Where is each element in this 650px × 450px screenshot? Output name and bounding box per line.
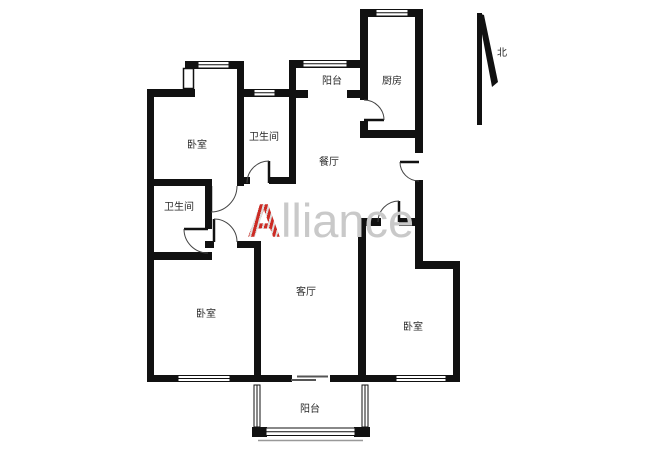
room-label-dining-room: 餐厅 xyxy=(319,155,339,168)
sliding-door xyxy=(291,377,328,381)
compass-north-label: 北 xyxy=(497,47,507,59)
watermark-first-letter: A xyxy=(247,194,281,247)
watermark-rest: lliance xyxy=(281,194,414,247)
room-label-bathroom-top: 卫生间 xyxy=(249,130,279,143)
room-label-bedroom-top-left: 卧室 xyxy=(187,138,207,151)
floorplan-canvas: 北 卧室卫生间阳台厨房餐厅卫生间卧室客厅卧室阳台 Alliance xyxy=(0,0,650,450)
room-label-balcony-bottom: 阳台 xyxy=(300,402,320,415)
room-label-balcony-top: 阳台 xyxy=(322,74,342,87)
north-arrow-icon xyxy=(477,13,498,125)
room-label-bedroom-bottom-left: 卧室 xyxy=(196,307,216,320)
room-label-bathroom-left: 卫生间 xyxy=(164,200,194,213)
room-label-living-room: 客厅 xyxy=(296,285,316,298)
alliance-watermark: Alliance xyxy=(247,197,414,244)
room-label-kitchen: 厨房 xyxy=(382,74,402,87)
room-label-bedroom-right: 卧室 xyxy=(403,320,423,333)
duct-box xyxy=(184,69,194,89)
